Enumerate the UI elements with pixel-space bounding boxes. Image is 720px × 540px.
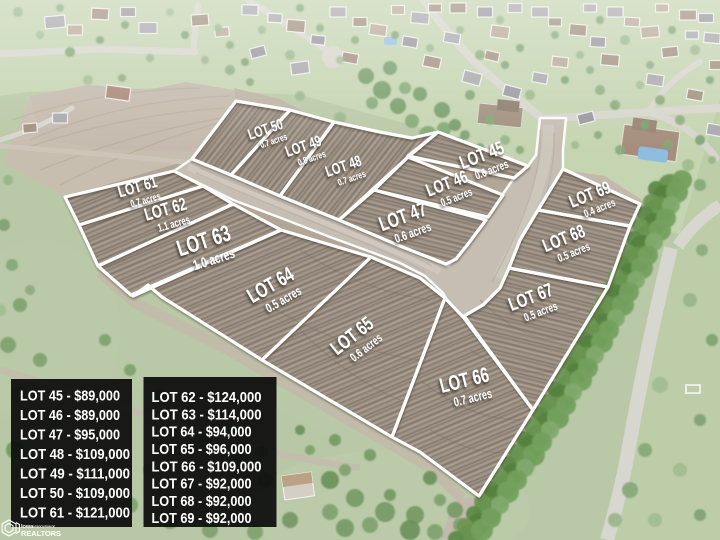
svg-text:LOT 66 - $109,000: LOT 66 - $109,000 [152,458,262,475]
svg-text:LOT 69 - $92,000: LOT 69 - $92,000 [152,510,252,527]
svg-text:LOT 47 - $95,000: LOT 47 - $95,000 [20,427,120,444]
svg-text:LOT 64 - $94,000: LOT 64 - $94,000 [152,424,252,441]
svg-text:LOT 61 - $121,000: LOT 61 - $121,000 [20,505,130,522]
svg-text:LOT 48 - $109,000: LOT 48 - $109,000 [20,446,130,463]
svg-text:LOT 45 - $89,000: LOT 45 - $89,000 [20,388,120,405]
svg-text:LOT 49 - $111,000: LOT 49 - $111,000 [20,466,130,483]
svg-text:REALTORS: REALTORS [21,531,61,538]
svg-text:LOT 46 - $89,000: LOT 46 - $89,000 [20,407,120,424]
svg-text:LOT 67 - $92,000: LOT 67 - $92,000 [152,476,252,493]
svg-text:LOT 68 - $92,000: LOT 68 - $92,000 [152,493,252,510]
svg-text:LOT 62 - $124,000: LOT 62 - $124,000 [152,389,262,406]
svg-text:LOT 50 - $109,000: LOT 50 - $109,000 [20,485,130,502]
svg-text:LOT 63 - $114,000: LOT 63 - $114,000 [152,406,262,423]
svg-text:ASSOCIATION OF: ASSOCIATION OF [33,525,56,529]
svg-text:LOT 65 - $96,000: LOT 65 - $96,000 [152,441,252,458]
